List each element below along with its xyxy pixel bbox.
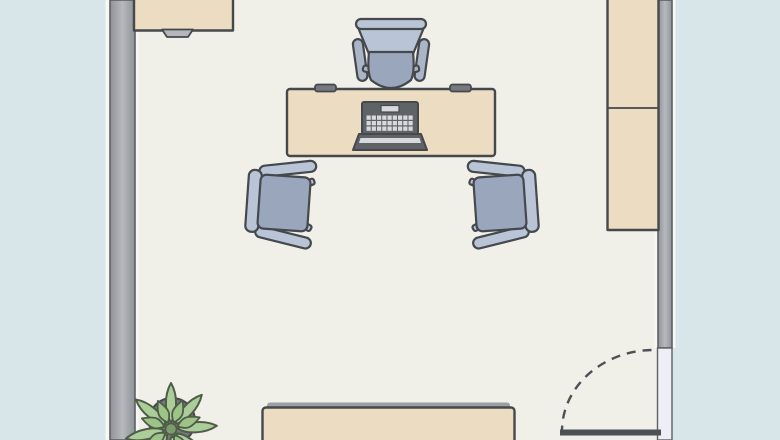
plant-center bbox=[166, 424, 177, 435]
chair-seat bbox=[257, 174, 311, 231]
door-opening bbox=[658, 348, 673, 440]
left-wall bbox=[106, 0, 139, 440]
tall-cabinet-right bbox=[608, 0, 659, 230]
laptop-keyboard bbox=[367, 116, 413, 131]
desk-grommet-right bbox=[450, 85, 471, 92]
cabinet-handle bbox=[162, 30, 193, 38]
floor-plan-canvas bbox=[0, 0, 780, 440]
sideboard bbox=[263, 403, 515, 440]
desk-grommet-left bbox=[315, 85, 336, 92]
office-chair bbox=[352, 19, 429, 88]
door-leaf bbox=[560, 430, 661, 436]
chair-seat bbox=[473, 174, 527, 231]
chair-headrest-bar bbox=[356, 19, 426, 29]
laptop-screen-glare bbox=[359, 138, 421, 143]
laptop-trackpad bbox=[381, 106, 399, 113]
laptop bbox=[353, 102, 427, 150]
wall-cabinet-top-left bbox=[134, 0, 233, 37]
chair-seat bbox=[368, 52, 413, 88]
